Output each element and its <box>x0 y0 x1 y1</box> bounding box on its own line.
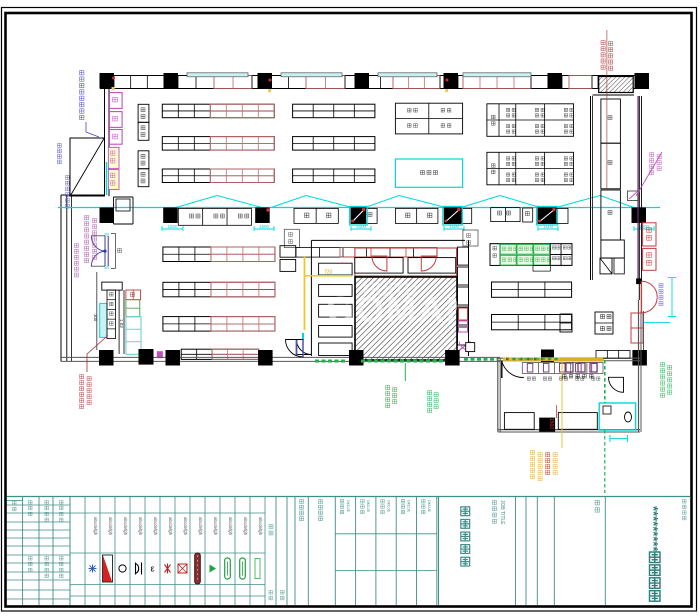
svg-text:1500: 1500 <box>356 224 367 229</box>
svg-text:OKDJE: OKDJE <box>407 500 411 513</box>
svg-text:1500: 1500 <box>167 224 178 229</box>
svg-text:abcdefgh: abcdefgh <box>138 517 143 536</box>
svg-text:abcdefgh: abcdefgh <box>258 517 263 536</box>
svg-text:720: 720 <box>324 270 333 276</box>
svg-text:HUITU: HUITU <box>363 280 418 300</box>
svg-text:OKDJE: OKDJE <box>366 500 370 513</box>
svg-text:1500: 1500 <box>449 224 460 229</box>
svg-text:1500: 1500 <box>548 418 554 429</box>
svg-text:abcdefgh: abcdefgh <box>108 517 113 536</box>
svg-text:abcdefgh: abcdefgh <box>168 517 173 536</box>
svg-text:abcdefgh: abcdefgh <box>243 517 248 536</box>
svg-text:1500: 1500 <box>259 224 270 229</box>
svg-text:abcdefgh: abcdefgh <box>183 517 188 536</box>
svg-text:abcdefgh: abcdefgh <box>153 517 158 536</box>
svg-text:1500: 1500 <box>543 224 554 229</box>
svg-text:OKDJE: OKDJE <box>427 500 431 513</box>
svg-text:abcdefgh: abcdefgh <box>198 517 203 536</box>
svg-text:abcdefgh: abcdefgh <box>228 517 233 536</box>
svg-text:abcdefgh: abcdefgh <box>123 517 128 536</box>
svg-text:JOB TITLE: JOB TITLE <box>499 500 505 525</box>
svg-text:abcdefgh: abcdefgh <box>213 517 218 536</box>
svg-text:OKDJE: OKDJE <box>346 500 350 513</box>
svg-text:300: 300 <box>93 314 98 322</box>
svg-text:1500: 1500 <box>639 224 650 229</box>
svg-text:1.03: 1.03 <box>119 319 124 328</box>
svg-text:abcdefgh: abcdefgh <box>93 517 98 536</box>
svg-text:ε: ε <box>150 564 154 574</box>
svg-text:OKDJE: OKDJE <box>386 500 390 513</box>
svg-text:*********: ********* <box>646 506 661 552</box>
